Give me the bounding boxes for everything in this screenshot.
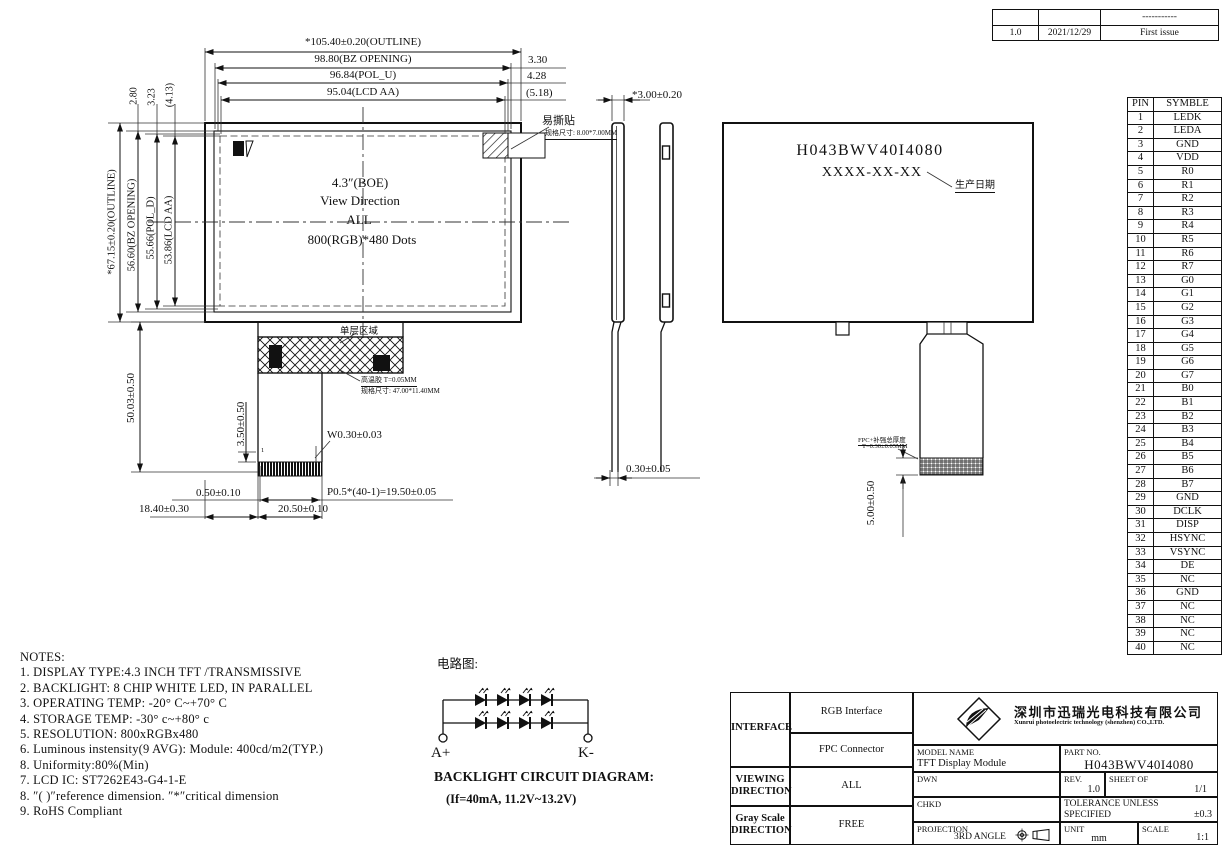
dim-outline-width: *105.40±0.20(OUTLINE): [305, 36, 421, 48]
dim-right-gap-lcd: (5.18): [526, 87, 553, 99]
pin-row: 22B1: [1128, 397, 1222, 411]
dim-tail-offset: 18.40±0.30: [139, 503, 189, 515]
pin-row: 15G2: [1128, 301, 1222, 315]
anode-terminal: [439, 734, 447, 742]
interface-value-2-cell: FPC Connector: [790, 733, 913, 767]
side-view: [594, 95, 700, 486]
dim-right-gap-bz: 3.30: [528, 54, 547, 66]
note-item: 4. STORAGE TEMP: -30° c~+80° c: [20, 712, 323, 727]
company-logo: [956, 696, 1002, 742]
pin-row: 17G4: [1128, 329, 1222, 343]
anode-label: A+: [431, 745, 450, 762]
tape-size-label: 规格尺寸: 47.00*11.40MM: [361, 386, 440, 396]
fiducial-mark: [233, 141, 244, 156]
pin-row: 19G6: [1128, 356, 1222, 370]
dim-edge-margin: 0.50±0.10: [196, 487, 241, 499]
title-block: INTERFACE RGB Interface FPC Connector VI…: [730, 692, 1218, 845]
panel-size-text: 4.3″(BOE): [332, 175, 388, 191]
view-direction-value: ALL: [346, 212, 371, 228]
note-item: 8. Uniformity:80%(Min): [20, 758, 323, 773]
gray-scale-value-cell: FREE: [790, 806, 913, 845]
dim-bz-height: 56.60(BZ OPENING): [127, 179, 138, 272]
pin-row: 37NC: [1128, 600, 1222, 614]
pin-row: 25B4: [1128, 437, 1222, 451]
single-layer-label: 单层区域: [340, 323, 378, 337]
dim-left-gap-lcd: (4.13): [165, 83, 176, 107]
tolerance-value: ±0.3: [1194, 809, 1212, 820]
company-name-en: Xunrui photoelectric technology (shenzhe…: [1014, 719, 1164, 726]
pin-row: 8R3: [1128, 206, 1222, 220]
company-logo-cell: 深圳市迅瑞光电科技有限公司 Xunrui photoelectric techn…: [913, 692, 1218, 745]
tolerance-cell: TOLERANCE UNLESS SPECIFIED ±0.3: [1060, 797, 1218, 822]
pin-row: 23B2: [1128, 410, 1222, 424]
pin-row: 35NC: [1128, 573, 1222, 587]
dim-outline-height: *67.15±0.20(OUTLINE): [107, 169, 118, 275]
dim-pol-height: 55.66(POL_D): [146, 196, 157, 259]
note-item: 6. Luminous instensity(9 AVG): Module: 4…: [20, 742, 323, 757]
pin-row: 34DE: [1128, 560, 1222, 574]
dwn-cell: DWN: [913, 772, 1060, 797]
pin-row: 5R0: [1128, 165, 1222, 179]
tolerance-line1: TOLERANCE UNLESS: [1064, 799, 1159, 809]
dim-left-gap-bz: 2.80: [129, 87, 140, 105]
interface-value-1-cell: RGB Interface: [790, 692, 913, 733]
scale-cell: SCALE 1:1: [1138, 822, 1218, 845]
cathode-label: K-: [578, 745, 594, 762]
note-item: 5. RESOLUTION: 800xRGBx480: [20, 727, 323, 742]
pin-row: 26B5: [1128, 451, 1222, 465]
notes-title: NOTES:: [20, 650, 323, 665]
pin-row: 38NC: [1128, 614, 1222, 628]
dim-left-gap-pol: 3.23: [147, 88, 158, 106]
pin-row: 1LEDK: [1128, 111, 1222, 125]
pin-row: 39NC: [1128, 628, 1222, 642]
revision-table: ----------- 1.0 2021/12/29 First issue: [992, 9, 1219, 41]
rev-cell: REV. 1.0: [1060, 772, 1105, 797]
pin-table-body: 1LEDK2LEDA3GND4VDD5R06R17R28R39R410R511R…: [1128, 111, 1222, 655]
projection-value: 3RD ANGLE: [954, 832, 1006, 842]
drawing-sheet: .o2{stroke:#111;stroke-width:2;fill:#fff…: [0, 0, 1223, 856]
note-item: 7. LCD IC: ST7262E43-G4-1-E: [20, 773, 323, 788]
pin-row: 9R4: [1128, 220, 1222, 234]
dim-pitch: P0.5*(40-1)=19.50±0.05: [327, 486, 436, 498]
revision-number: 1.0: [993, 25, 1039, 41]
pin-row: 29GND: [1128, 492, 1222, 506]
dim-bz-width: 98.80(BZ OPENING): [314, 53, 411, 65]
backlight-circuit: [439, 688, 592, 742]
back-part-no: H043BWV40I4080: [796, 142, 943, 160]
pin-table: PIN SYMBLE 1LEDK2LEDA3GND4VDD5R06R17R28R…: [1127, 97, 1222, 655]
revision-row: -----------: [993, 10, 1219, 26]
dim-fpc-thickness: 0.30±0.05: [626, 463, 671, 475]
pin-row: 4VDD: [1128, 152, 1222, 166]
pin-row: 13G0: [1128, 274, 1222, 288]
dim-tail-width: 20.50±0.10: [278, 503, 328, 515]
pin-row: 36GND: [1128, 587, 1222, 601]
pin-row: 11R6: [1128, 247, 1222, 261]
dim-stiffener-offset: 5.00±0.50: [865, 481, 877, 526]
pin-row: 2LEDA: [1128, 125, 1222, 139]
sticker-size-label: 规格尺寸: 8.00*7.00MM: [545, 128, 617, 140]
rev-value: 1.0: [1088, 784, 1101, 795]
note-item: 1. DISPLAY TYPE:4.3 INCH TFT /TRANSMISSI…: [20, 665, 323, 680]
sheet-cell: SHEET OF 1/1: [1105, 772, 1218, 797]
pin-row: 6R1: [1128, 179, 1222, 193]
pin-row: 27B6: [1128, 465, 1222, 479]
sheet-value: 1/1: [1194, 784, 1207, 795]
dim-finger-width: W0.30±0.03: [327, 429, 382, 441]
pin-row: 30DCLK: [1128, 505, 1222, 519]
dim-fpc-length: 50.03±0.50: [125, 373, 137, 423]
part-no-cell: PART NO. H043BWV40I4080: [1060, 745, 1218, 772]
pin-row: 7R2: [1128, 193, 1222, 207]
pin-row: 16G3: [1128, 315, 1222, 329]
pin-row: 21B0: [1128, 383, 1222, 397]
resolution-text: 800(RGB)*480 Dots: [308, 232, 417, 248]
production-date-label: 生产日期: [955, 176, 995, 193]
unit-value: mm: [1061, 833, 1137, 844]
pin-row: 32HSYNC: [1128, 533, 1222, 547]
pin1-marker: 1: [261, 447, 264, 454]
note-item: 8. ″( )″reference dimension. ″*″critical…: [20, 789, 323, 804]
third-angle-icon: [1015, 828, 1053, 842]
revision-desc: First issue: [1101, 25, 1219, 41]
pin-row: 12R7: [1128, 261, 1222, 275]
pin-row: 20G7: [1128, 369, 1222, 383]
back-stiffener: [920, 458, 983, 475]
pin-row: 3GND: [1128, 138, 1222, 152]
dim-pol-width: 96.84(POL_U): [330, 69, 396, 81]
pin-col-header: PIN: [1128, 98, 1154, 112]
view-direction-text: View Direction: [320, 193, 400, 209]
viewing-direction-label-cell: VIEWING DIRECTION: [730, 767, 790, 806]
revision-row: 1.0 2021/12/29 First issue: [993, 25, 1219, 41]
model-name-value: TFT Display Module: [917, 758, 1006, 769]
interface-label-cell: INTERFACE: [730, 692, 790, 767]
pin-row: 10R5: [1128, 233, 1222, 247]
pin-row: 33VSYNC: [1128, 546, 1222, 560]
back-date-placeholder: XXXX-XX-XX: [822, 165, 922, 181]
fpc-tail: [258, 322, 403, 476]
pin-row: 14G1: [1128, 288, 1222, 302]
pin-row: 18G5: [1128, 342, 1222, 356]
dim-thickness: *3.00±0.20: [632, 89, 682, 101]
circuit-title: 电路图:: [437, 653, 478, 672]
dim-lcd-height: 53.86(LCD AA): [164, 196, 175, 265]
dim-right-gap-pol: 4.28: [527, 70, 546, 82]
cathode-terminal: [584, 734, 592, 742]
connector-fingers: [258, 462, 322, 476]
viewing-direction-value-cell: ALL: [790, 767, 913, 806]
scale-value: 1:1: [1196, 832, 1209, 843]
front-view: [148, 107, 572, 476]
pin-row: 28B7: [1128, 478, 1222, 492]
unit-cell: UNIT mm: [1060, 822, 1138, 845]
dim-stiffener: 3.50±0.50: [235, 402, 247, 447]
circuit-caption: BACKLIGHT CIRCUIT DIAGRAM:: [434, 769, 654, 785]
pin-table-header: PIN SYMBLE: [1128, 98, 1222, 112]
notes-list: 1. DISPLAY TYPE:4.3 INCH TFT /TRANSMISSI…: [20, 665, 323, 819]
symbol-col-header: SYMBLE: [1154, 98, 1222, 112]
note-item: 9. RoHS Compliant: [20, 804, 323, 819]
part-no-value: H043BWV40I4080: [1061, 757, 1217, 773]
note-item: 3. OPERATING TEMP: -20° C~+70° C: [20, 696, 323, 711]
pin-row: 24B3: [1128, 424, 1222, 438]
chkd-cell: CHKD: [913, 797, 1060, 822]
sticker-label: 易撕贴: [542, 112, 575, 128]
pin-row: 31DISP: [1128, 519, 1222, 533]
revision-date: 2021/12/29: [1039, 25, 1101, 41]
model-name-cell: MODEL NAME TFT Display Module: [913, 745, 1060, 772]
pin-row: 40NC: [1128, 641, 1222, 655]
tolerance-line2: SPECIFIED: [1064, 810, 1111, 820]
circuit-spec: (If=40mA, 11.2V~13.2V): [446, 792, 576, 807]
dim-lcd-width: 95.04(LCD AA): [327, 86, 399, 98]
notes-block: NOTES: 1. DISPLAY TYPE:4.3 INCH TFT /TRA…: [20, 650, 323, 819]
note-item: 2. BACKLIGHT: 8 CHIP WHITE LED, IN PARAL…: [20, 681, 323, 696]
gray-scale-label-cell: Gray Scale DIRECTION: [730, 806, 790, 845]
projection-cell: PROJECTION 3RD ANGLE: [913, 822, 1060, 845]
stiffener-note-2: T=0.30±0.05MM: [862, 443, 908, 450]
